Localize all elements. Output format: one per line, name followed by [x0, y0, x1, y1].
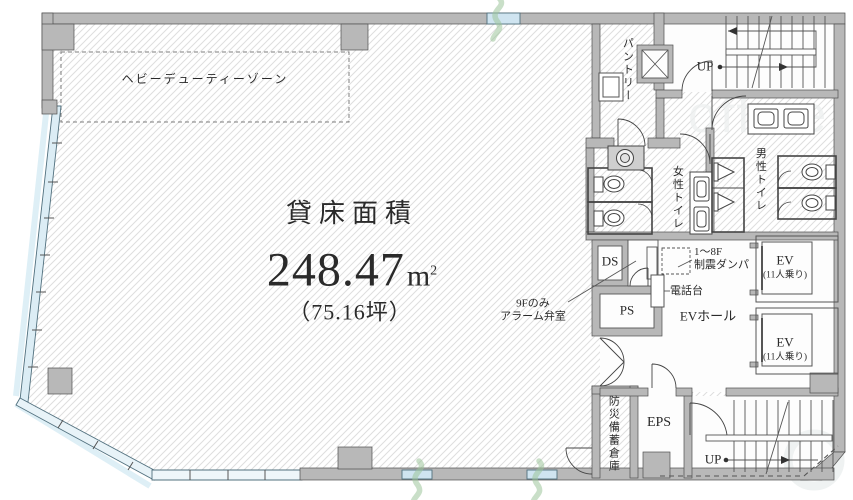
floor-plan: office: [0, 0, 853, 500]
heavy-duty-zone-label: ヘビーデューティーゾーン: [122, 73, 289, 87]
room-label-pantry: パントリー: [621, 38, 634, 103]
room-label-disaster-storage: 防災備蓄倉庫: [607, 395, 620, 473]
phone-stand-label: 電話台: [670, 285, 703, 298]
room-label-ps: PS: [620, 304, 634, 319]
ev1-capacity: (11人乗り): [763, 271, 807, 282]
rental-area-value: 248.47 m2: [267, 242, 437, 297]
room-label-ev-hall: EVホール: [680, 310, 736, 325]
alarm-room-label: 9Fのみ アラーム弁室: [500, 297, 566, 322]
area-number: 248.47: [267, 242, 405, 297]
up-label-bottom: UP: [705, 453, 722, 468]
ev2-label: EV: [776, 336, 793, 351]
room-label-eps: EPS: [647, 415, 671, 431]
pantry-sink: [599, 73, 623, 101]
area-unit: m2: [407, 259, 437, 294]
up-label-top: UP: [697, 60, 714, 75]
damper-label: 1～8F 制震ダンパ: [694, 246, 749, 271]
phone-stand-shelf: [651, 275, 664, 307]
room-label-womens-toilet: 女性トイレ: [671, 166, 684, 231]
room-label-mens-toilet: 男性トイレ: [754, 148, 767, 213]
rental-area-tsubo: （75.16坪）: [288, 299, 412, 324]
room-label-ds: DS: [602, 255, 619, 270]
ev1-label: EV: [776, 254, 793, 269]
rental-area-title: 貸床面積: [286, 199, 418, 229]
ev2-capacity: (11人乗り): [763, 353, 807, 364]
